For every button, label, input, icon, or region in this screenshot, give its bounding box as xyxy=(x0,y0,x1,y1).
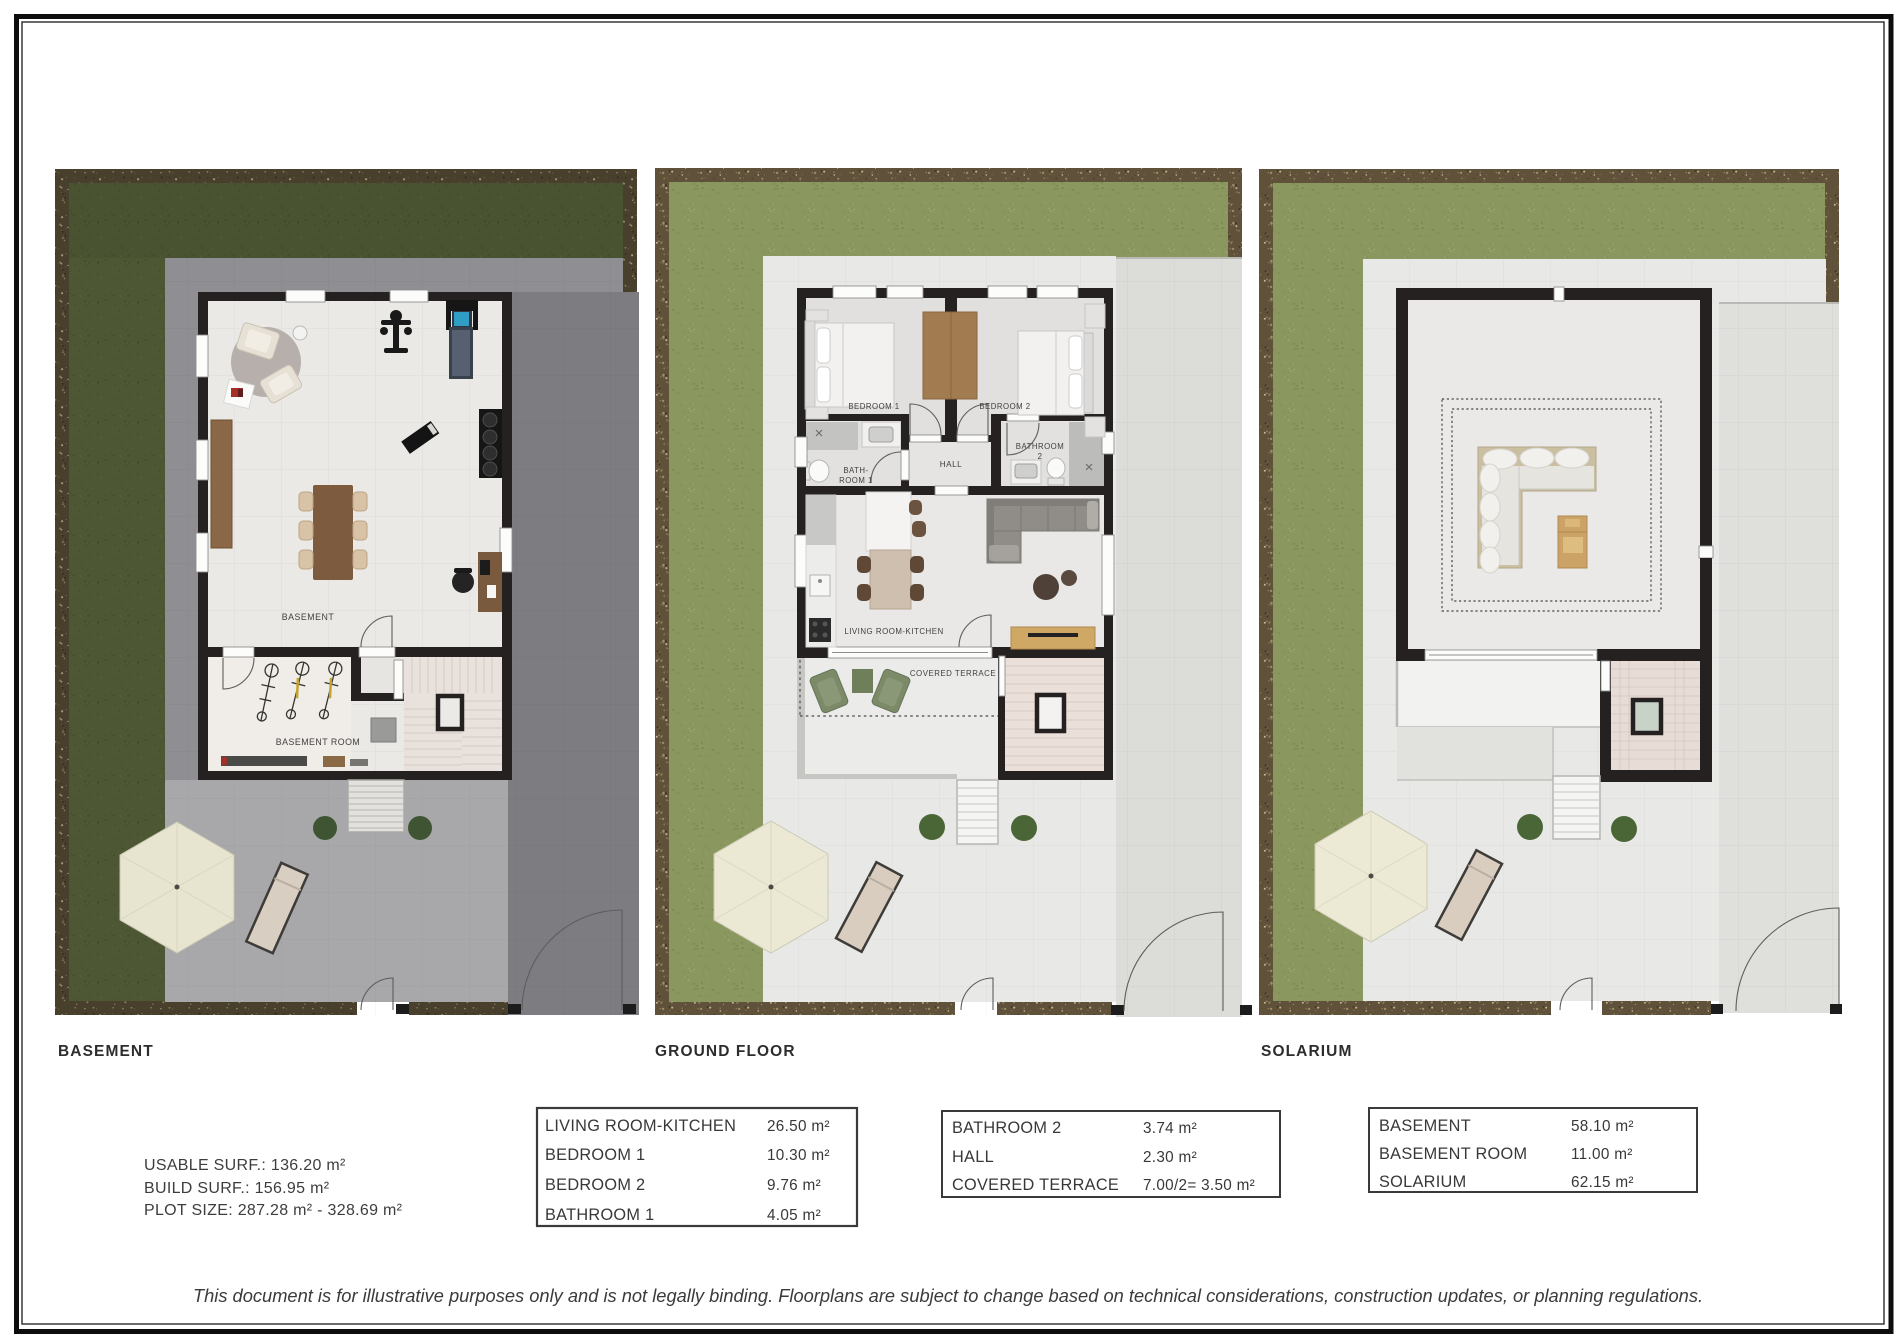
svg-text:COVERED TERRACE: COVERED TERRACE xyxy=(952,1176,1119,1194)
svg-text:BASEMENT: BASEMENT xyxy=(282,612,335,622)
svg-text:BUILD SURF.: 156.95 m²: BUILD SURF.: 156.95 m² xyxy=(144,1180,330,1197)
svg-text:BASEMENT ROOM: BASEMENT ROOM xyxy=(1379,1145,1527,1163)
svg-text:COVERED TERRACE: COVERED TERRACE xyxy=(910,669,996,678)
svg-text:SOLARIUM: SOLARIUM xyxy=(1261,1043,1352,1060)
svg-text:BASEMENT: BASEMENT xyxy=(58,1043,154,1060)
svg-text:HALL: HALL xyxy=(952,1148,994,1166)
svg-text:BEDROOM 1: BEDROOM 1 xyxy=(545,1146,645,1164)
svg-text:LIVING ROOM-KITCHEN: LIVING ROOM-KITCHEN xyxy=(545,1117,736,1135)
svg-text:ROOM 1: ROOM 1 xyxy=(839,476,873,485)
svg-text:This document is for illustrat: This document is for illustrative purpos… xyxy=(193,1285,1703,1306)
svg-text:4.05 m²: 4.05 m² xyxy=(767,1207,821,1224)
svg-text:3.74 m²: 3.74 m² xyxy=(1143,1120,1197,1137)
svg-text:26.50 m²: 26.50 m² xyxy=(767,1118,830,1135)
svg-text:BATHROOM: BATHROOM xyxy=(1016,442,1064,451)
svg-text:62.15 m²: 62.15 m² xyxy=(1571,1174,1634,1191)
svg-text:BEDROOM 2: BEDROOM 2 xyxy=(979,402,1030,411)
svg-text:11.00 m²: 11.00 m² xyxy=(1571,1146,1633,1163)
svg-text:USABLE SURF.: 136.20 m²: USABLE SURF.: 136.20 m² xyxy=(144,1157,346,1174)
svg-text:GROUND FLOOR: GROUND FLOOR xyxy=(655,1043,796,1060)
svg-text:7.00/2= 3.50 m²: 7.00/2= 3.50 m² xyxy=(1143,1177,1255,1194)
svg-text:9.76 m²: 9.76 m² xyxy=(767,1177,821,1194)
svg-text:BATH-: BATH- xyxy=(843,466,868,475)
svg-text:PLOT SIZE: 287.28 m² - 328.69: PLOT SIZE: 287.28 m² - 328.69 m² xyxy=(144,1202,403,1219)
svg-text:SOLARIUM: SOLARIUM xyxy=(1379,1173,1466,1191)
svg-text:BASEMENT: BASEMENT xyxy=(1379,1117,1471,1135)
svg-text:2: 2 xyxy=(1038,452,1043,461)
svg-text:BEDROOM 1: BEDROOM 1 xyxy=(848,402,899,411)
svg-text:10.30 m²: 10.30 m² xyxy=(767,1147,830,1164)
svg-text:BEDROOM 2: BEDROOM 2 xyxy=(545,1176,645,1194)
svg-text:HALL: HALL xyxy=(940,460,962,469)
svg-text:BASEMENT ROOM: BASEMENT ROOM xyxy=(276,737,361,747)
svg-text:LIVING ROOM-KITCHEN: LIVING ROOM-KITCHEN xyxy=(844,627,943,636)
svg-text:2.30 m²: 2.30 m² xyxy=(1143,1149,1197,1166)
svg-text:BATHROOM 1: BATHROOM 1 xyxy=(545,1206,654,1224)
svg-text:58.10 m²: 58.10 m² xyxy=(1571,1118,1634,1135)
svg-text:BATHROOM 2: BATHROOM 2 xyxy=(952,1119,1061,1137)
